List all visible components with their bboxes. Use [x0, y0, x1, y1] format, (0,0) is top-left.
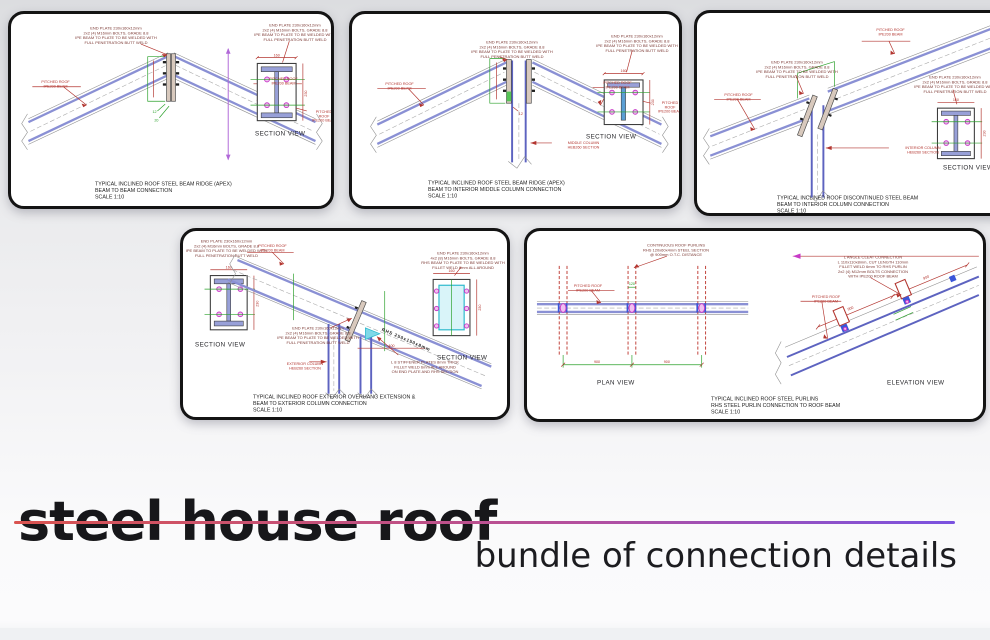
svg-text:230: 230: [651, 99, 655, 105]
infographic-canvas: 12 20 160 230 END PLATE 230x160x12mm2x2 …: [0, 0, 990, 640]
panel-caption: TYPICAL INCLINED ROOF EXTERIOR OVERHANG …: [253, 394, 415, 414]
panel-exterior-overhang: 160 230 400: [180, 228, 510, 420]
panel-caption: TYPICAL INCLINED ROOF STEEL BEAM RIDGE (…: [95, 181, 232, 201]
section-view-rhs-right: 160 230: [433, 269, 482, 335]
svg-text:12: 12: [519, 112, 523, 116]
svg-text:160: 160: [953, 98, 959, 102]
svg-text:230: 230: [304, 90, 308, 96]
bottom-strip: [0, 628, 990, 640]
panel-interior-column: 160 230 END PLATE 230x160x12mm2x2 (4) M1…: [694, 10, 990, 216]
label-section-beam: PITCHED ROOFIPE200 BEAM: [656, 101, 682, 114]
label-roof-beam: PITCHED ROOFIPE200 BEAM: [245, 244, 300, 253]
panel-apex-middle-column: 12 160 230 END PLATE 230x160x12mm2x2 (4)…: [349, 11, 682, 209]
panel-caption: TYPICAL INCLINED ROOF DISCONTINUED STEEL…: [777, 195, 918, 215]
section-view-label-left: SECTION VIEW: [195, 341, 245, 348]
annotation-cleat: L ANGLE CLEAT CONNECTIONL 110x110x8mm, C…: [823, 255, 923, 279]
label-roof-beam-plan: PITCHED ROOFIPE200 BEAM: [563, 284, 613, 293]
section-view-label-right: SECTION VIEW: [437, 354, 487, 361]
svg-text:160: 160: [621, 69, 627, 73]
svg-text:900: 900: [923, 275, 930, 281]
svg-text:230: 230: [478, 304, 482, 310]
plan-view-label: PLAN VIEW: [597, 379, 635, 386]
drawing-interior-column: 160 230: [697, 13, 990, 213]
page-subtitle: bundle of connection details: [475, 536, 957, 576]
annotation-end-plate: END PLATE 230x160x12mm2x2 (4) M16mm BOLT…: [56, 26, 176, 45]
svg-text:900: 900: [594, 360, 600, 364]
panel-apex-beam-to-beam: 12 20 160 230 END PLATE 230x160x12mm2x2 …: [8, 11, 334, 209]
annotation-end-plate-section: END PLATE 230x160x12mm2x2 (4) M16mm BOLT…: [905, 75, 990, 94]
label-right-beam: PITCHED ROOFIPE200 BEAM: [256, 77, 311, 86]
annotation-stiffener: L 8 STIFFENER PLATES 8mm THICKFILLET WEL…: [375, 360, 475, 374]
elevation-view-label: ELEVATION VIEW: [887, 379, 944, 386]
plan-view: 900 900 120: [537, 256, 748, 367]
label-left-beam: PITCHED ROOFIPE200 BEAM: [711, 93, 766, 102]
label-left-beam: PITCHED ROOFIPE200 BEAM: [28, 80, 83, 89]
annotation-end-plate-section: END PLATE 230x160x12mm2x2 (4) M16mm BOLT…: [592, 34, 682, 53]
annotation-end-plate: END PLATE 230x160x12mm2x2 (4) M16mm BOLT…: [452, 40, 572, 59]
panel-caption: TYPICAL INCLINED ROOF STEEL BEAM RIDGE (…: [428, 180, 565, 200]
accent-gradient-line: [14, 521, 955, 524]
section-view-label: SECTION VIEW: [943, 164, 990, 171]
label-left-beam: PITCHED ROOFIPE200 BEAM: [372, 82, 427, 91]
label-right-beam: PITCHED ROOFIPE200 BEAM: [590, 81, 645, 90]
label-section-beam: PITCHED ROOFIPE200 BEAM: [311, 110, 334, 123]
section-view-label: SECTION VIEW: [255, 130, 305, 137]
section-view-ibeam-left: 160 230: [205, 265, 260, 329]
svg-text:900: 900: [664, 360, 670, 364]
section-view-label: SECTION VIEW: [586, 133, 636, 140]
svg-text:120: 120: [629, 282, 635, 286]
panel-caption: TYPICAL INCLINED ROOF STEEL PURLINSRHS S…: [711, 396, 840, 416]
svg-text:160: 160: [274, 53, 280, 57]
panel-roof-purlins: 900 900 120 900 900: [524, 228, 986, 422]
annotation-end-plate-section: END PLATE 230x160x12mm2x2 (4) M16mm BOLT…: [253, 23, 334, 42]
label-roof-beam-elevation: PITCHED ROOFIPE200 BEAM: [801, 295, 851, 304]
svg-text:900: 900: [847, 306, 854, 312]
end-plates-and-bolts: [503, 60, 535, 104]
label-interior-column: INTERIOR COLUMNHEB260 SECTION: [893, 146, 953, 155]
annotation-end-plate: END PLATE 230x160x12mm2x2 (4) M16mm BOLT…: [737, 60, 857, 79]
annotation-purlins: CONTINUOUS ROOF PURLINSRHS 120x60x4mm ST…: [631, 243, 721, 257]
svg-text:12: 12: [152, 110, 156, 114]
end-plates-and-bolts: [797, 88, 838, 136]
svg-text:20: 20: [154, 119, 158, 123]
annotation-end-plate-mid: END PLATE 230x160x12mm2x2 (4) M16mm BOLT…: [268, 326, 368, 345]
svg-text:230: 230: [983, 130, 987, 136]
label-top-beam: PITCHED ROOFIPE200 BEAM: [863, 28, 918, 37]
svg-text:230: 230: [255, 301, 259, 307]
annotation-end-plate-rhs: END PLATE 230x160x12mm4x2 (8) M16mm BOLT…: [413, 251, 510, 270]
label-exterior-column: EXTERIOR COLUMNHEB260 SECTION: [275, 362, 335, 371]
label-middle-column: MIDDLE COLUMNHEB260 SECTION: [556, 141, 611, 150]
